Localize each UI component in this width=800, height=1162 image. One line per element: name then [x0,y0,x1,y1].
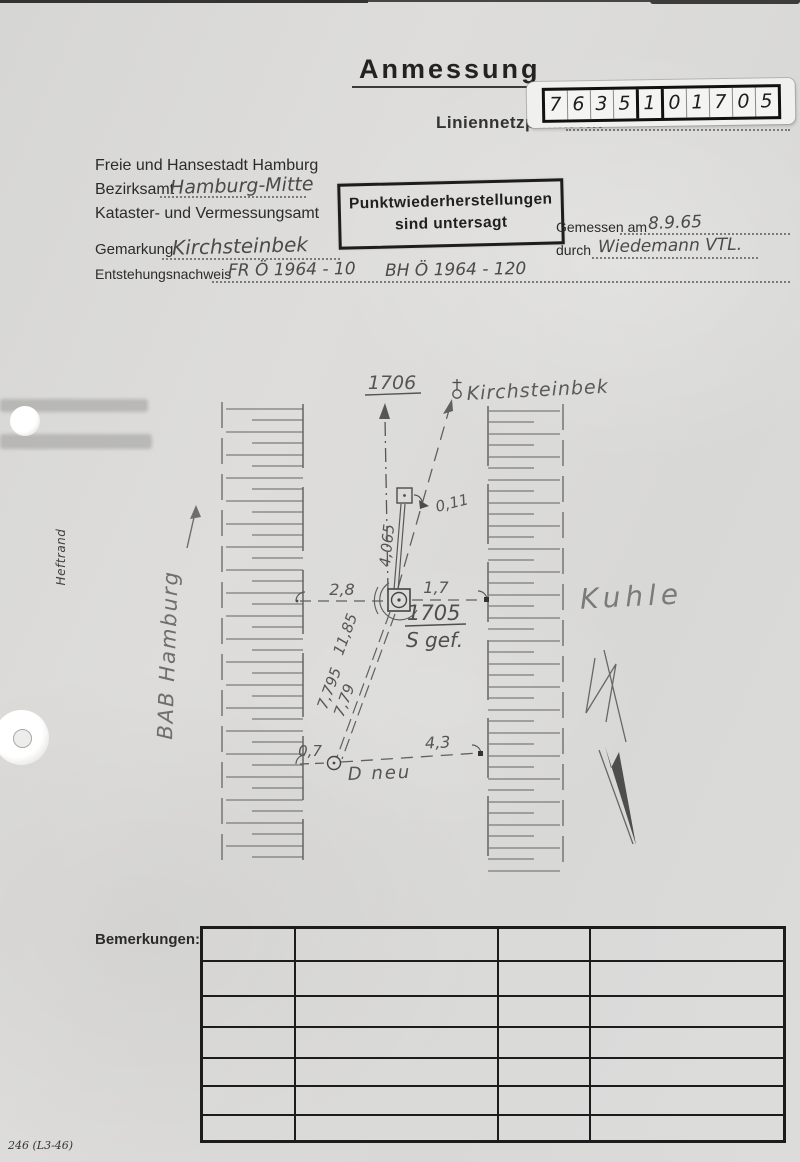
remarks-table [200,926,786,1143]
measure-011: 0,11 [434,490,471,516]
table-hline [203,1026,783,1028]
durch-label: durch [556,242,591,258]
title-underline [352,86,528,88]
gemarkung-value: Kirchsteinbek [172,232,309,260]
measure-4065: 4,065 [376,523,398,568]
gemarkung-label: Gemarkung [95,241,173,258]
stamp-line2: sind untersagt [347,211,555,239]
measure-43: 4,3 [425,732,451,752]
measure-1185: 11,85 [329,611,361,658]
table-hline [203,960,783,962]
table-hline [203,1114,783,1116]
durch-dotted-line [592,257,758,259]
measure-17: 1,7 [423,578,449,597]
entstehung-label: Entstehungsnachweis [95,266,231,282]
road-label: BAB Hamburg [153,570,183,740]
measure-line-d-right [341,745,483,762]
point-1705-note: S gef. [406,628,463,652]
line-to-church [398,399,453,588]
pit-label: Kuhle [579,577,684,615]
entstehung-dotted-line [212,281,790,283]
digit-cell: 1 [638,88,663,117]
digit-cell: 5 [755,87,777,116]
point-number-sticker: 7 6 3 5 1 0 1 7 0 5 [527,78,796,128]
digit-cell: 6 [567,90,590,119]
gemessen-value: 8.9.65 [648,212,703,234]
authority-line: Freie und Hansestadt Hamburg [95,157,318,175]
scanned-survey-form: Heftrand Anmessung Liniennetzpunkt Nr. 7… [0,0,800,1162]
restriction-stamp: Punktwiederherstellungen sind untersagt [337,178,565,249]
page-title: Anmessung [359,54,541,85]
point-d-neu-symbol [328,757,341,770]
digit-cell: 0 [663,88,686,117]
point-d-neu-label: D neu [347,762,411,785]
point-number-box: 7 6 3 5 1 0 1 7 0 5 [541,84,781,123]
point-1705-label: 1705 [407,601,460,625]
measure-07: 0,7 [298,742,322,760]
survey-sketch: BAB Hamburg Kuhle 1706 Kirchsteinbek [0,330,800,930]
church-label: Kirchsteinbek [466,376,609,405]
digit-cell: 0 [732,87,755,116]
digit-cell: 3 [590,89,613,118]
digit-cell: 5 [613,89,638,118]
left-slope-hatching [222,402,303,862]
entstehung-value-b: BH Ö 1964 - 120 [385,259,527,281]
digit-cell: 7 [709,87,732,116]
entstehung-value-a: FR Ö 1964 - 10 [228,259,356,281]
office-line: Kataster- und Vermessungsamt [95,205,319,223]
point-1706-label: 1706 [368,372,416,394]
table-hline [203,1085,783,1087]
bezirksamt-value: Hamburg-Mitte [170,173,314,199]
digit-cell: 1 [686,88,709,117]
remarks-label: Bemerkungen: [95,931,200,948]
form-code: 246 (L3-46) [8,1139,73,1152]
north-arrow [586,650,636,845]
road-direction-arrow [187,505,201,548]
table-hline [203,1057,783,1059]
durch-value: Wiedemann VTL. [598,235,742,258]
scan-edge-top-right [650,0,800,4]
right-slope-hatching [488,404,563,872]
digit-cell: 7 [544,90,567,119]
table-hline [203,995,783,997]
scan-edge-top-left [0,0,368,3]
church-icon [453,379,462,398]
measure-28: 2,8 [329,580,354,599]
